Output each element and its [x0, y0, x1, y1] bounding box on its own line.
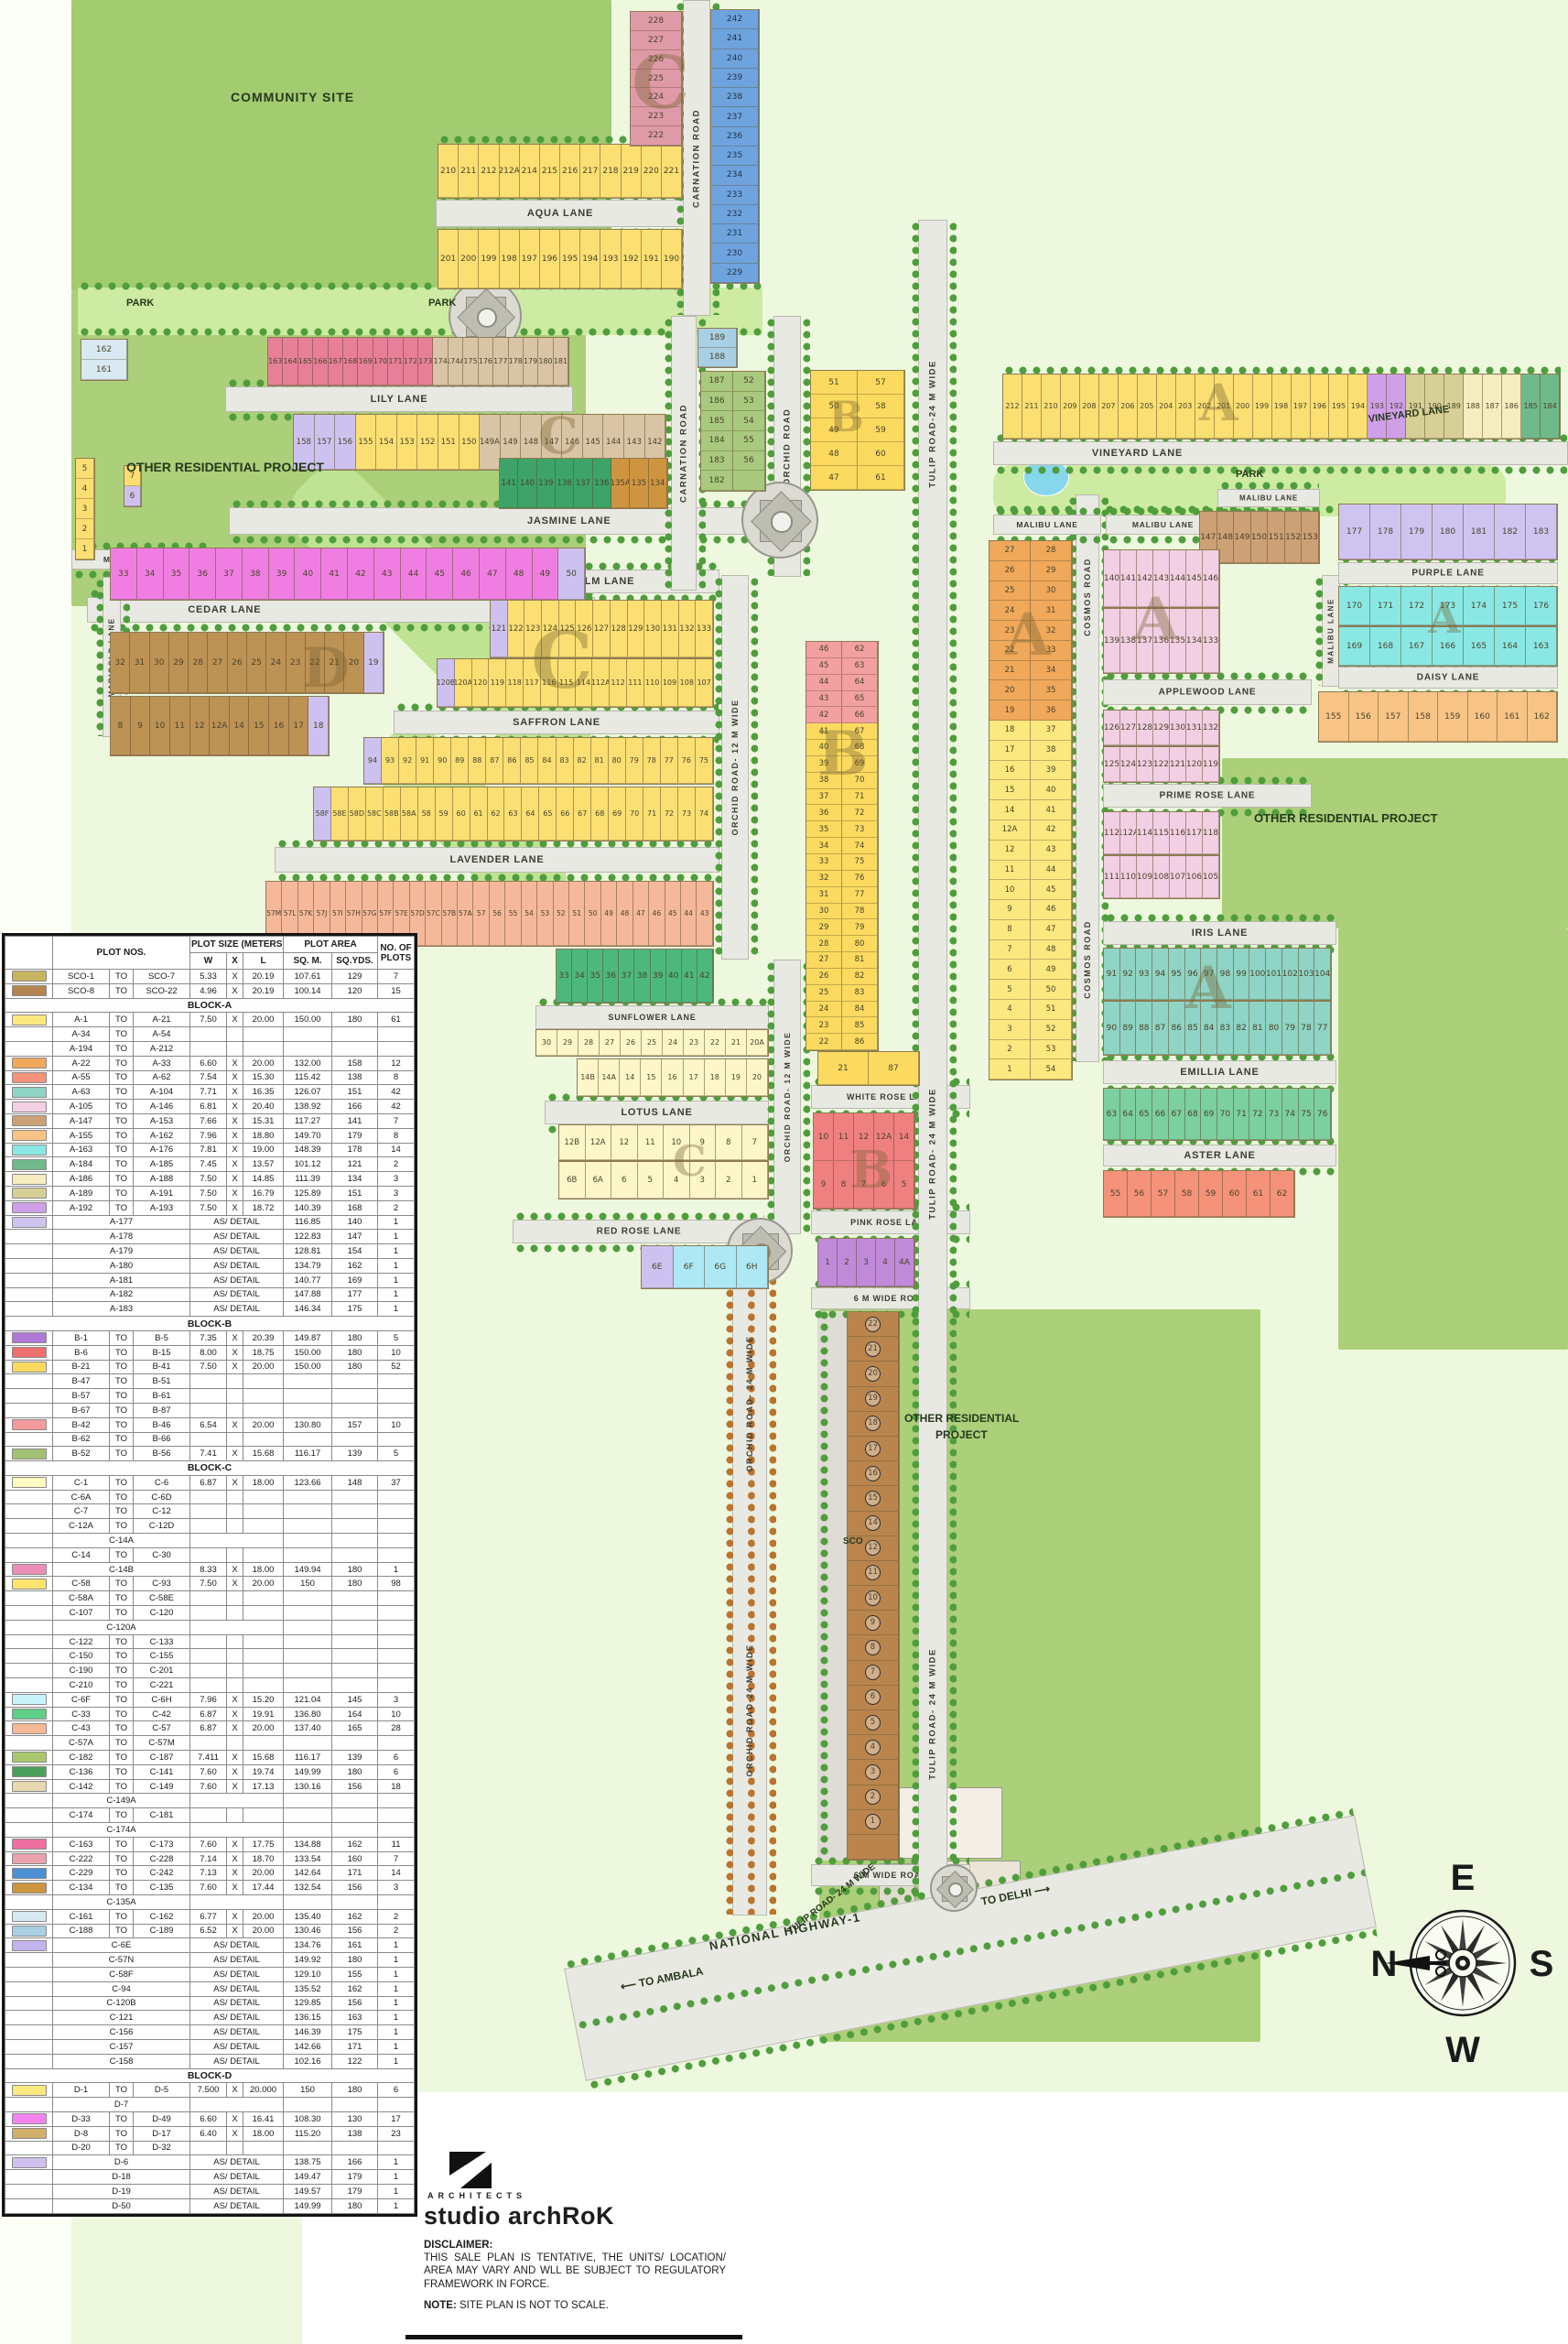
legend-cell [332, 1490, 378, 1504]
lane-label: PURPLE LANE [1411, 569, 1484, 579]
legend-cell: 171 [332, 2039, 378, 2054]
plot-row: 189 [698, 329, 737, 348]
plot-cell: 14 [989, 800, 1031, 820]
plot-row: 12B12A121110987 [559, 1125, 768, 1160]
plot-cell: 62 [488, 787, 505, 841]
legend-cell: X [227, 2083, 243, 2098]
color-swatch [12, 1101, 47, 1112]
legend-cell [5, 2155, 53, 2170]
legend-cell: TO [110, 1577, 134, 1591]
legend-cell: A-105 [53, 1100, 110, 1114]
legend-cell [5, 1085, 53, 1100]
legend-cell: 7.60 [190, 1764, 227, 1779]
legend-cell: D-8 [53, 2126, 110, 2141]
plot-cell: 10 [848, 1586, 899, 1611]
plot-cell: 19 [726, 1059, 747, 1096]
legend-cell [243, 1606, 284, 1621]
legend-cell: 151 [332, 1186, 378, 1200]
legend-cell: 7.50 [190, 1186, 227, 1200]
plot-cell: 10 [150, 697, 170, 755]
site-plan-page: { "map": { "regions": [ {"n":"left-margi… [0, 0, 1568, 2344]
legend-cell: 116.17 [284, 1447, 332, 1461]
plot-cell: 163 [268, 338, 283, 385]
plot-cell: 12 [611, 1125, 638, 1160]
plot-row: 98765 [814, 1161, 914, 1209]
plot-cell: 11 [989, 861, 1031, 881]
plot-cell: 197 [520, 230, 540, 288]
legend-cell: 130.80 [284, 1417, 332, 1432]
plot-cell: 122 [508, 601, 525, 657]
road-lavender-lane: LAVENDER LANE [275, 847, 719, 873]
legend-row: A-194TOA-212 [5, 1041, 415, 1056]
legend-row: C-161TOC-1626.77X20.00135.401622 [5, 1909, 415, 1924]
plot-cell: 46 [453, 548, 480, 600]
legend-cell: TO [110, 2126, 134, 2141]
plot-cell: 174A [449, 338, 463, 385]
legend-row: A-34TOA-54 [5, 1027, 415, 1042]
plot-cell: 178 [509, 338, 524, 385]
legend-cell: 108.30 [284, 2111, 332, 2126]
legend-cell: C-190 [53, 1664, 110, 1678]
plot-cell: 197 [1292, 374, 1311, 439]
lane-label: AQUA LANE [527, 208, 593, 219]
plot-cell: 198 [1272, 374, 1292, 439]
sqm-header: SQ. M. [284, 953, 332, 970]
plot-row: 126127128129130131132 [1104, 711, 1219, 745]
road-purple-lane: PURPLE LANE [1338, 562, 1558, 584]
plot-cell: 172 [1401, 587, 1433, 625]
plot-row: 4266 [806, 707, 878, 723]
road-sunflower-lane: SUNFLOWER LANE [535, 1005, 769, 1029]
plot-cell: 235 [711, 146, 759, 166]
road-malibu-lane: MALIBU LANE [1217, 489, 1320, 507]
legend-cell: 10 [378, 1345, 415, 1360]
map-label: PARK [428, 298, 456, 309]
legend-cell: 149.70 [284, 1128, 332, 1143]
plot-cell: 24 [806, 1002, 842, 1018]
legend-cell: 158 [332, 1056, 378, 1070]
legend-cell: 180 [332, 1764, 378, 1779]
plot-cell: 51 [1031, 1000, 1072, 1020]
plot-row: 1 [76, 539, 94, 559]
legend-cell: 116.85 [284, 1215, 332, 1230]
plot-cell: 91 [416, 738, 434, 784]
plot-cell: 11 [834, 1113, 854, 1161]
legend-row: C-14A [5, 1534, 415, 1548]
plot-cell: 241 [711, 29, 759, 49]
legend-cell: 156 [332, 1996, 378, 2011]
plot-cell: 212 [479, 145, 499, 198]
plot-row: 9089888786858483828180797877 [1104, 1002, 1331, 1055]
plot-row: 239 [711, 69, 759, 88]
legend-cell: 142.66 [284, 2039, 332, 2054]
plot-cell: 5 [989, 980, 1031, 1000]
plot-row: 3969 [806, 756, 878, 773]
plots-210-221: 210211212212A214215216217218219220221 [438, 144, 683, 199]
color-swatch [12, 2157, 47, 2168]
legend-section-row: BLOCK-B [5, 1317, 415, 1331]
legend-cell: 165 [332, 1721, 378, 1736]
plot-cell: 69 [609, 787, 626, 841]
legend-cell: 1 [378, 1967, 415, 1981]
plot-cell: 184 [1541, 374, 1560, 439]
plot-cell: 19 [989, 700, 1031, 721]
legend-cell: B-6 [53, 1345, 110, 1360]
plot-row: 234 [711, 166, 759, 185]
legend-cell [5, 1389, 53, 1404]
legend-cell [243, 1041, 284, 1056]
legend-cell [227, 1041, 243, 1056]
color-swatch [12, 1130, 47, 1141]
plot-cell: 22 [306, 633, 325, 693]
plot-cell: 239 [711, 69, 759, 88]
plot-row: 4761 [811, 466, 904, 490]
plot-cell: 71 [643, 787, 661, 841]
legend-cell: 15.30 [243, 1070, 284, 1085]
legend-row: C-58TOC-937.50X20.0015018098 [5, 1577, 415, 1591]
legend-cell [378, 1041, 415, 1056]
lane-label: ORCHID ROAD- 12 M WIDE [783, 1032, 792, 1163]
legend-row: A-22TOA-336.60X20.00132.0015812 [5, 1056, 415, 1070]
legend-cell: 111.39 [284, 1172, 332, 1187]
legend-cell [378, 1606, 415, 1621]
legend-cell [332, 1823, 378, 1838]
plot-row: 3672 [806, 805, 878, 821]
plot-cell: 3 [857, 1239, 876, 1286]
legend-cell: X [227, 1475, 243, 1490]
plot-cell: 86 [503, 738, 521, 784]
legend-row: A-186TOA-1887.50X14.85111.391343 [5, 1172, 415, 1187]
legend-cell: C-57N [53, 1953, 190, 1968]
plot-cell: 152 [1285, 512, 1303, 563]
plot-row: 1540 [989, 780, 1072, 800]
plot-row: 2530 [989, 581, 1072, 602]
legend-cell [243, 1403, 284, 1417]
color-swatch [12, 1781, 47, 1792]
legend-cell: 132.54 [284, 1881, 332, 1895]
legend-cell [378, 1634, 415, 1649]
lane-label: MALIBU LANE [1327, 598, 1336, 664]
legend-cell: C-162 [134, 1909, 190, 1924]
legend-cell: 20.39 [243, 1330, 284, 1345]
legend-cell [227, 1389, 243, 1404]
plot-cell: 55 [733, 431, 765, 451]
legend-cell: 156 [332, 1924, 378, 1938]
plot-row: 223 [631, 107, 682, 126]
legend-cell [5, 1100, 53, 1114]
legend-cell: C-189 [134, 1924, 190, 1938]
legend-cell: 132.00 [284, 1056, 332, 1070]
legend-cell: 2 [378, 1924, 415, 1938]
plot-cell: 57 [858, 371, 904, 395]
legend-cell: 7.50 [190, 1360, 227, 1374]
plot-cell: 228 [631, 12, 682, 31]
plot-cell: 41 [682, 950, 697, 1003]
legend-cell: AS/ DETAIL [190, 2039, 284, 2054]
legend-cell: 7.71 [190, 1085, 227, 1100]
plot-cell: 84 [842, 1002, 878, 1018]
legend-cell: C-187 [134, 1751, 190, 1765]
legend-cell: B-66 [134, 1432, 190, 1447]
plot-cell: 151 [438, 415, 460, 470]
tree-line [994, 464, 1567, 474]
legend-cell [284, 1591, 332, 1606]
lane-label: COSMOS ROAD [1083, 558, 1092, 636]
plot-cell: 29 [169, 633, 189, 693]
legend-cell: 128.81 [284, 1244, 332, 1259]
plot-cell: 72 [842, 805, 878, 821]
legend-cell [5, 1013, 53, 1027]
legend-cell [190, 1808, 227, 1823]
legend-cell [284, 1606, 332, 1621]
plot-row: 1243 [989, 841, 1072, 861]
plot-row: 1 [848, 1810, 899, 1835]
plot-row: 120B120A120119118117116115114112A1121111… [438, 659, 713, 707]
legend-cell [227, 1808, 243, 1823]
legend-row: C-229TOC-2427.13X20.00142.6417114 [5, 1866, 415, 1881]
legend-cell: X [227, 1143, 243, 1157]
legend-cell: 6.40 [190, 2126, 227, 2141]
legend-cell: 14.85 [243, 1172, 284, 1187]
plot-cell: 61 [858, 466, 904, 490]
legend-cell [190, 1678, 227, 1693]
plot-cell: 17 [989, 741, 1031, 761]
plot-row: 141140139138137136135A135134 [500, 459, 667, 508]
legend-cell: 1 [378, 1981, 415, 1996]
plot-cell: 131 [662, 601, 679, 657]
plot-cell: 56 [733, 451, 765, 472]
plot-cell: 69 [842, 756, 878, 773]
plot-cell: 1 [848, 1810, 899, 1835]
plot-row: 451 [989, 1000, 1072, 1020]
legend-row: D-50AS/ DETAIL149.991801 [5, 2198, 415, 2213]
plot-cell: 108 [678, 659, 696, 707]
legend-cell: TO [110, 1374, 134, 1389]
plot-cell: 7 [989, 940, 1031, 960]
plot-cell: 187 [1483, 374, 1502, 439]
disclaimer-title: DISCLAIMER: [424, 2240, 744, 2251]
plot-row: 3029282726252423222120A [536, 1030, 768, 1056]
legend-cell: TO [110, 1085, 134, 1100]
legend-cell [5, 1374, 53, 1389]
plots-a-139-133: 139138137136135134133 [1103, 608, 1220, 674]
plot-cell: 83 [842, 985, 878, 1002]
legend-cell: 1 [378, 1302, 415, 1317]
legend-cell: 3 [378, 1881, 415, 1895]
legend-cell: 6.52 [190, 1924, 227, 1938]
legend-cell: TO [110, 2141, 134, 2155]
legend-cell [227, 1547, 243, 1562]
plot-cell: 198 [500, 230, 520, 288]
legend-cell: A-186 [53, 1172, 110, 1187]
legend-cell [378, 1432, 415, 1447]
plot-cell: 154 [376, 415, 397, 470]
plot-cell: 35 [1031, 680, 1072, 700]
plots-c-121-133: 121122123124125126127128129130131132133 [490, 600, 714, 658]
legend-cell: X [227, 1330, 243, 1345]
legend-cell: 175 [332, 2025, 378, 2040]
legend-row: SCO-8TOSCO-224.96X20.19100.1412015 [5, 983, 415, 998]
plot-cell [733, 471, 765, 491]
plot-row: 14B14A14151617181920 [578, 1059, 768, 1096]
plot-nos-header: PLOT NOS. [53, 937, 190, 970]
legend-cell: 6.81 [190, 1100, 227, 1114]
legend-row: C-142TOC-1497.60X17.13130.1615618 [5, 1779, 415, 1794]
legend-cell: C-12A [53, 1519, 110, 1534]
legend-row: C-122TOC-133 [5, 1634, 415, 1649]
plot-cell: 55 [505, 882, 521, 946]
legend-cell [378, 1027, 415, 1042]
plot-cell: 37 [1031, 721, 1072, 741]
plot-row: 2134 [989, 661, 1072, 681]
plot-cell: 50 [811, 395, 858, 418]
plot-row: 3078 [806, 904, 878, 920]
plot-cell: 73 [678, 787, 696, 841]
plot-cell: 178 [1370, 505, 1401, 559]
legend-cell: TO [110, 1100, 134, 1114]
legend-cell: TO [110, 1389, 134, 1404]
plot-cell: 1 [742, 1162, 769, 1199]
road-malibu-lane: MALIBU LANE [993, 515, 1101, 535]
legend-cell: 177 [332, 1287, 378, 1302]
plot-cell: 140 [1104, 550, 1120, 607]
plot-cell: 3 [690, 1162, 717, 1199]
plot-cell: 67 [574, 787, 591, 841]
legend-cell: X [227, 1562, 243, 1577]
plot-row: 17 [848, 1437, 899, 1461]
plot-cell: 70 [842, 773, 878, 789]
plot-cell: 212A [500, 145, 520, 198]
legend-cell: 8.33 [190, 1562, 227, 1577]
color-swatch [12, 1694, 47, 1705]
legend-cell [5, 1996, 53, 2011]
legend-cell: A-191 [134, 1186, 190, 1200]
legend-row: A-184TOA-1857.45X13.57101.121212 [5, 1157, 415, 1172]
plot-cell: 8 [848, 1635, 899, 1660]
legend-row: A-192TOA-1937.50X18.72140.391682 [5, 1200, 415, 1215]
legend-cell [378, 1736, 415, 1751]
plot-cell: 180 [1433, 505, 1464, 559]
legend-cell [5, 1360, 53, 1374]
plot-cell: 150 [1251, 512, 1269, 563]
plot-cell: 39 [806, 756, 842, 773]
plot-row: 3231302928272625242322212019 [111, 633, 384, 693]
legend-row: C-134TOC-1357.60X17.44132.541563 [5, 1881, 415, 1895]
plot-cell: 1 [989, 1059, 1031, 1080]
legend-cell: 1 [378, 2054, 415, 2068]
legend-cell [227, 2141, 243, 2155]
legend-cell: X [227, 1186, 243, 1200]
plot-row: 241 [711, 29, 759, 49]
plot-cell: 65 [842, 691, 878, 708]
plot-cell: 91 [1104, 949, 1120, 1000]
legend-cell: TO [110, 1751, 134, 1765]
plot-cell: 32 [806, 871, 842, 887]
legend-row: C-157AS/ DETAIL142.661711 [5, 2039, 415, 2054]
plot-cell: 136 [1153, 609, 1170, 673]
plots-a-140-146: 140141142143144145146 [1103, 549, 1220, 608]
plot-cell: 42 [1031, 820, 1072, 841]
plot-cell: 185 [1521, 374, 1541, 439]
plot-cell: 110 [644, 659, 662, 707]
legend-cell: 18.72 [243, 1200, 284, 1215]
legend-cell: B-62 [53, 1432, 110, 1447]
plot-row: 3573 [806, 821, 878, 838]
plots-a-126-132: 126127128129130131132 [1103, 710, 1220, 746]
legend-cell [378, 1519, 415, 1534]
legend-cell [332, 1736, 378, 1751]
map-label: OTHER RESIDENTIAL PROJECT [126, 460, 324, 474]
legend-cell: 6.87 [190, 1475, 227, 1490]
legend-cell: A-155 [53, 1128, 110, 1143]
legend-row: C-43TOC-576.87X20.00137.4016528 [5, 1721, 415, 1736]
legend-cell [378, 1620, 415, 1634]
legend-cell [378, 2098, 415, 2112]
plot-cell: 28 [1031, 541, 1072, 561]
color-swatch [12, 1072, 47, 1083]
plot-cell: 143 [1153, 550, 1170, 607]
map-label: PARK [1236, 469, 1263, 480]
plot-cell: 175 [463, 338, 478, 385]
legend-cell [378, 1808, 415, 1823]
plot-row: 12A42 [989, 820, 1072, 841]
legend-row: C-1TOC-66.87X18.00123.6614837 [5, 1475, 415, 1490]
legend-cell: 180 [332, 1360, 378, 1374]
plot-cell: 111 [1104, 856, 1120, 898]
legend-cell: X [227, 1751, 243, 1765]
legend-cell [243, 1027, 284, 1042]
legend-cell: X [227, 970, 243, 984]
legend-cell [5, 1519, 53, 1534]
legend-cell [378, 1591, 415, 1606]
legend-cell: 149.47 [284, 2170, 332, 2185]
plot-cell: 193 [1368, 374, 1387, 439]
plot-row: 4662 [806, 642, 878, 658]
plot-cell: 155 [1319, 692, 1349, 742]
legend-cell [227, 1664, 243, 1678]
legend-cell: 1 [378, 2011, 415, 2025]
plot-cell: 21 [848, 1337, 899, 1362]
legend-cell: C-6D [134, 1490, 190, 1504]
legend-cell: TO [110, 1403, 134, 1417]
color-swatch [12, 1564, 47, 1575]
legend-cell: 18.00 [243, 2126, 284, 2141]
plot-cell: 138 [556, 459, 574, 508]
lane-label: IRIS LANE [1192, 928, 1249, 939]
plot-cell: 64 [842, 675, 878, 691]
legend-cell [190, 1591, 227, 1606]
plot-cell: 172 [404, 338, 418, 385]
tree-line [766, 1275, 776, 1915]
road-aqua-lane: AQUA LANE [436, 200, 685, 227]
plot-cell: 54 [733, 411, 765, 431]
legend-row: C-136TOC-1417.60X19.74149.991806 [5, 1764, 415, 1779]
plot-cell: 28 [579, 1030, 600, 1056]
legend-cell: AS/ DETAIL [190, 2198, 284, 2213]
plot-cell: 125 [1104, 747, 1120, 782]
legend-cell [332, 1432, 378, 1447]
legend-cell: 142.64 [284, 1866, 332, 1881]
legend-cell: 1 [378, 2039, 415, 2054]
legend-header: PLOT NOS. PLOT SIZE (METERS) PLOT AREA N… [5, 937, 415, 970]
plot-cell: 4A [895, 1239, 914, 1286]
plot-cell: 41 [1031, 800, 1072, 820]
plot-cell: 156 [1349, 692, 1379, 742]
plot-cell: 20 [989, 680, 1031, 700]
plot-cell: 58A [401, 787, 418, 841]
legend-row: A-180AS/ DETAIL134.791621 [5, 1258, 415, 1273]
legend-cell: 180 [332, 1953, 378, 1968]
